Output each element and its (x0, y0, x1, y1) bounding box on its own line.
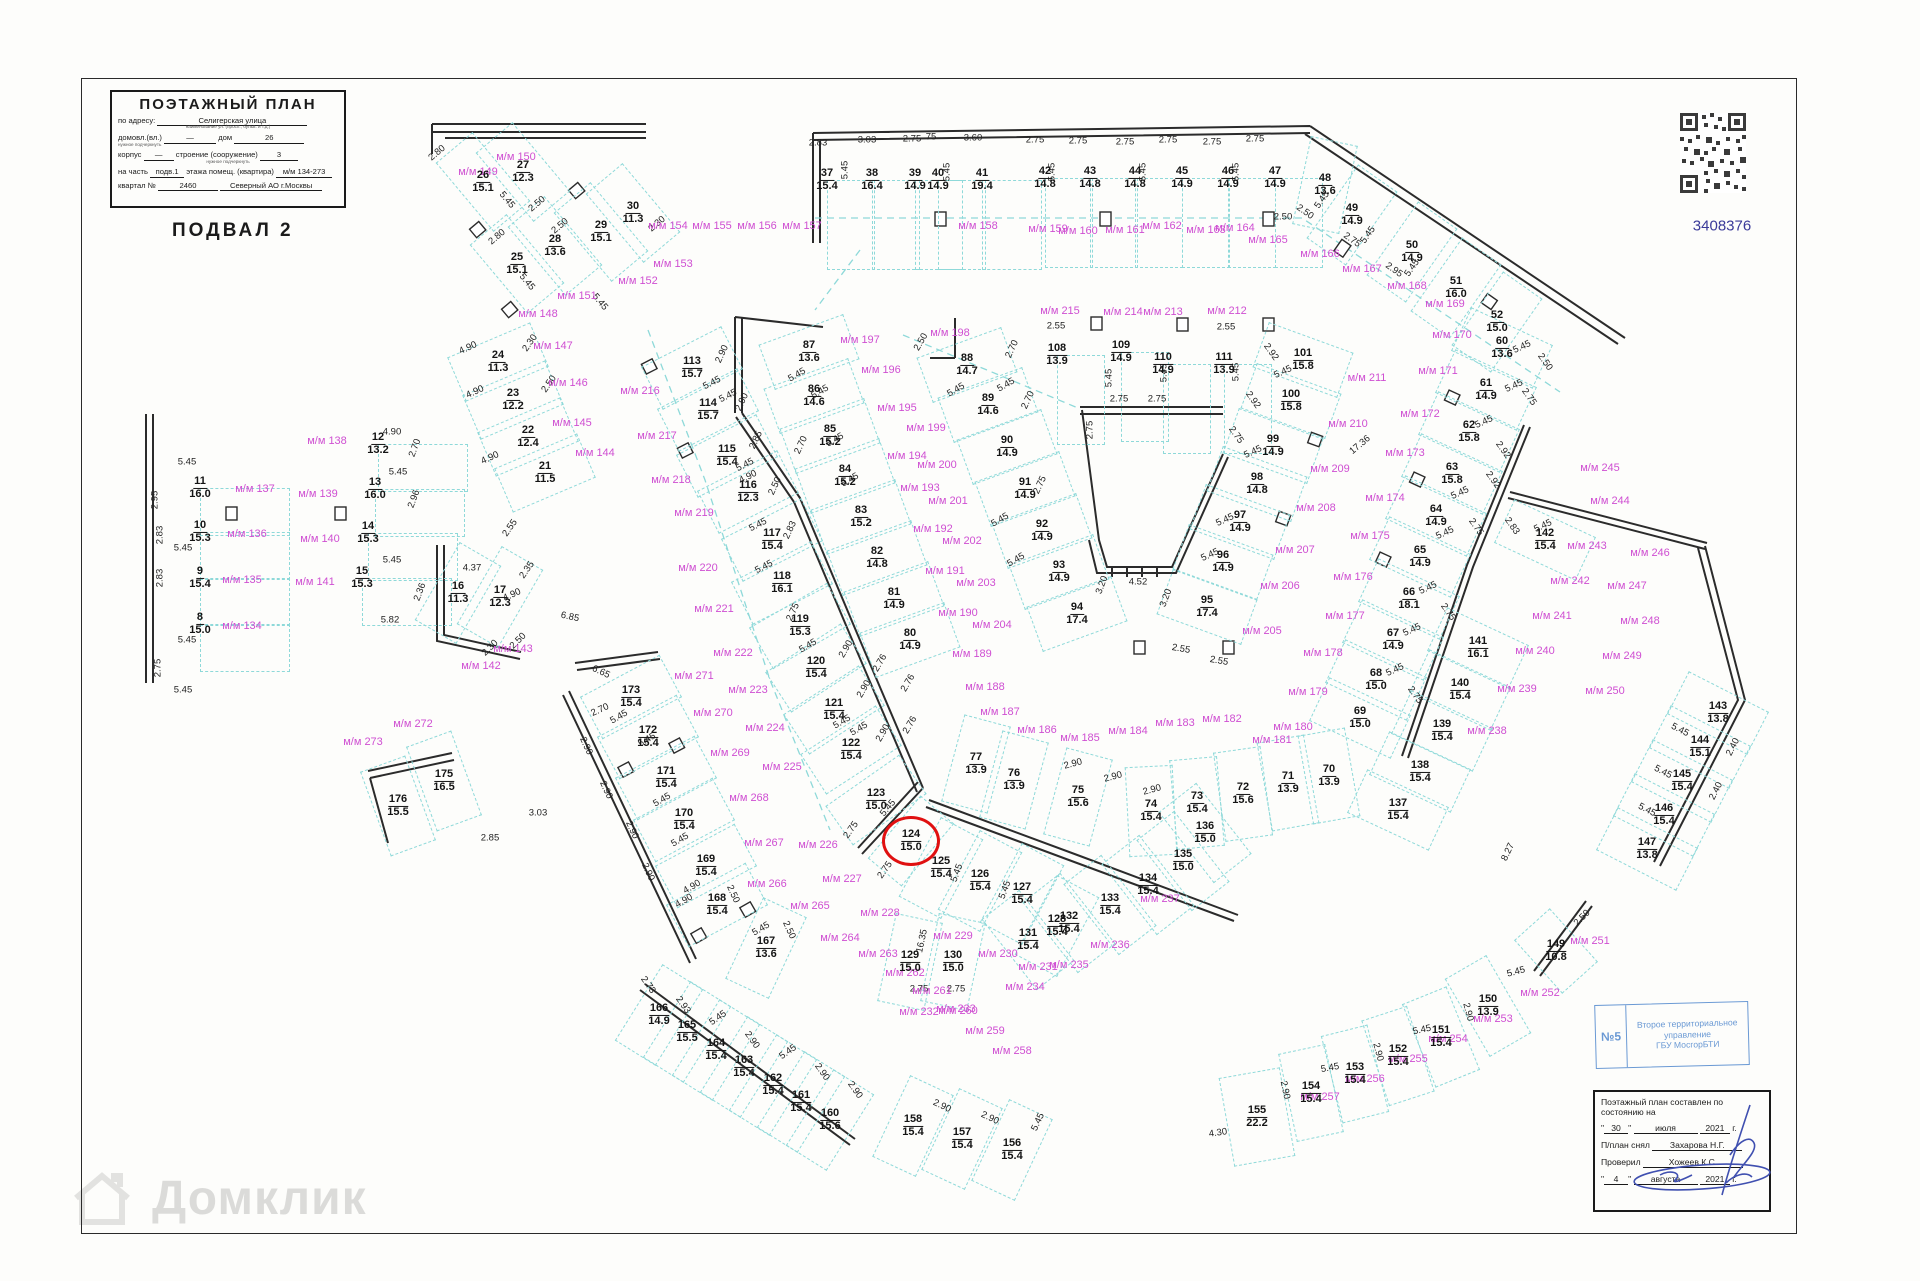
parking-space-label: 7013.9 (1318, 764, 1339, 788)
dimension-label: 2.75 (1148, 394, 1167, 405)
parking-space-id-label: м/м 222 (713, 647, 753, 659)
parking-space-label: 1015.3 (189, 520, 210, 544)
parking-space-label: 4014.9 (927, 168, 948, 192)
parking-space-label: 2312.2 (502, 388, 523, 412)
parking-space-label: 1213.2 (367, 432, 388, 456)
parking-space-id-label: м/м 217 (637, 430, 677, 442)
qr-number: 3408376 (1693, 218, 1751, 235)
parking-space-id-label: м/м 192 (913, 523, 953, 535)
dimension-label: 5.45 (178, 635, 197, 646)
parking-space-label: 4813.6 (1314, 173, 1335, 197)
parking-space-id-label: м/м 204 (972, 619, 1012, 631)
parking-space-id-label: м/м 269 (710, 747, 750, 759)
parking-space-id-label: м/м 172 (1400, 408, 1440, 420)
parking-space-label: 3715.4 (816, 168, 837, 192)
parking-space-label: 9914.9 (1262, 434, 1283, 458)
parking-space-id-label: м/м 266 (747, 878, 787, 890)
parking-space-id-label: м/м 187 (980, 706, 1020, 718)
parking-space-label: 11612.3 (737, 480, 758, 504)
parking-space-label: 6618.1 (1398, 587, 1419, 611)
parking-space-id-label: м/м 148 (518, 308, 558, 320)
watermark: Домклик (70, 1168, 367, 1228)
dimension-label: 2.75 (153, 659, 164, 678)
parking-space-label: 1415.3 (357, 521, 378, 545)
parking-space-label: 12715.4 (1011, 882, 1032, 906)
parking-space-label: 12115.4 (823, 698, 844, 722)
parking-space-id-label: м/м 176 (1333, 571, 1373, 583)
parking-space-label: 7315.4 (1186, 791, 1207, 815)
parking-space-label: 9214.9 (1031, 519, 1052, 543)
parking-space-label: 13815.4 (1409, 760, 1430, 784)
parking-space-id-label: м/м 236 (1090, 939, 1130, 951)
parking-space-label: 8214.8 (866, 546, 887, 570)
parking-space-id-label: м/м 173 (1385, 447, 1425, 459)
parking-space-label: 2411.3 (488, 350, 509, 374)
parking-space-id-label: м/м 216 (620, 385, 660, 397)
parking-space-label: 16015.6 (819, 1108, 840, 1132)
qr-code (1680, 113, 1746, 193)
dimension-label: 2.75 (1069, 136, 1088, 147)
parking-space-label: 16815.4 (706, 893, 727, 917)
parking-space-id-label: м/м 185 (1060, 732, 1100, 744)
parking-space-id-label: м/м 168 (1387, 280, 1427, 292)
parking-space-id-label: м/м 215 (1040, 305, 1080, 317)
parking-space-id-label: м/м 272 (393, 718, 433, 730)
parking-space-label: 8114.9 (883, 587, 904, 611)
parking-space-id-label: м/м 250 (1585, 685, 1625, 697)
parking-space-label: 10813.9 (1046, 343, 1067, 367)
quarter-number: 2460 (158, 181, 218, 191)
parking-space-label: 11515.4 (716, 444, 737, 468)
parking-space-label: 2712.3 (512, 160, 533, 184)
parking-space-id-label: м/м 245 (1580, 462, 1620, 474)
parking-space-label: 12515.4 (930, 856, 951, 880)
parking-space-id-label: м/м 219 (674, 507, 714, 519)
parking-space-id-label: м/м 273 (343, 736, 383, 748)
parking-space-label: 2813.6 (544, 234, 565, 258)
dimension-label: 2.85 (481, 833, 500, 844)
parking-space-id-label: м/м 263 (858, 948, 898, 960)
dimension-label: 5.45 (389, 467, 408, 478)
parking-space-label: 7415.4 (1140, 799, 1161, 823)
parking-space-label: 8614.6 (803, 384, 824, 408)
parking-space-id-label: м/м 142 (461, 660, 501, 672)
parking-space-id-label: м/м 182 (1202, 713, 1242, 725)
parking-space-id-label: м/м 201 (928, 495, 968, 507)
parking-space-label: 10914.9 (1110, 340, 1131, 364)
building-number: 3 (260, 150, 298, 160)
parking-space-id-label: м/м 270 (693, 707, 733, 719)
parking-space-id-label: м/м 264 (820, 932, 860, 944)
parking-space-id-label: м/м 203 (956, 577, 996, 589)
parking-space-label: 5014.9 (1401, 240, 1422, 264)
parking-space-id-label: м/м 259 (965, 1025, 1005, 1037)
parking-space-label: 8914.6 (977, 393, 998, 417)
parking-space-label: 8814.7 (956, 353, 977, 377)
parking-space-label: 7613.9 (1003, 768, 1024, 792)
parking-space-label: 14313.8 (1707, 701, 1728, 725)
parking-space-id-label: м/м 243 (1567, 540, 1607, 552)
parking-space-id-label: м/м 162 (1142, 220, 1182, 232)
parking-space-id-label: м/м 157 (782, 220, 822, 232)
parking-space-label: 15415.4 (1300, 1081, 1321, 1105)
parking-space-id-label: м/м 164 (1215, 222, 1255, 234)
parking-space-label: 17015.4 (673, 808, 694, 832)
parking-space-id-label: м/м 212 (1207, 305, 1247, 317)
dimension-label: 2.95 (150, 491, 161, 510)
parking-space-id-label: м/м 136 (227, 528, 267, 540)
parking-space-label: 15115.4 (1430, 1025, 1451, 1049)
dimension-label: 75 (926, 132, 937, 143)
parking-space-label: 16515.5 (676, 1020, 697, 1044)
parking-space-id-label: м/м 268 (729, 792, 769, 804)
parking-space-label: 8014.9 (899, 628, 920, 652)
parking-space-id-label: м/м 214 (1103, 306, 1143, 318)
parking-space-label: 15815.4 (902, 1114, 923, 1138)
basement-label: ПОДВАЛ 2 (172, 220, 294, 242)
parking-space-id-label: м/м 179 (1288, 686, 1328, 698)
parking-space-label: 17215.4 (637, 725, 658, 749)
parking-space-label: 2212.4 (517, 425, 538, 449)
parking-space-id-label: м/м 141 (295, 576, 335, 588)
parking-space-id-label: м/м 246 (1630, 547, 1670, 559)
dimension-label: 2.75 (1085, 421, 1096, 440)
parking-space-id-label: м/м 200 (917, 459, 957, 471)
highlighted-space-ring (882, 816, 940, 866)
dimension-label: 2.75 (1159, 135, 1178, 146)
parking-space-id-label: м/м 158 (958, 220, 998, 232)
parking-space-id-label: м/м 156 (737, 220, 777, 232)
dimension-label: 5.45 (840, 161, 851, 180)
parking-space-label: 2915.1 (590, 220, 611, 244)
dimension-label: 2.55 (1217, 322, 1236, 333)
dimension-label: 2.83 (155, 569, 166, 588)
parking-space-label: 12615.4 (969, 869, 990, 893)
stamp-text: Второе территориальноеуправлениеГБУ Мосг… (1626, 1002, 1749, 1067)
parking-space-id-label: м/м 208 (1296, 502, 1336, 514)
parking-space-label: 12015.4 (805, 656, 826, 680)
title-block-heading: ПОЭТАЖНЫЙ ПЛАН (118, 96, 338, 113)
parking-space-id-label: м/м 181 (1252, 734, 1292, 746)
parking-space-label: 11415.7 (697, 398, 718, 422)
parking-space-label: 4414.8 (1124, 166, 1145, 190)
parking-space-id-label: м/м 249 (1602, 650, 1642, 662)
parking-space-label: 7713.9 (965, 752, 986, 776)
parking-space-label: 17315.4 (620, 685, 641, 709)
parking-space-id-label: м/м 261 (912, 985, 952, 997)
parking-space-id-label: м/м 197 (840, 334, 880, 346)
parking-space-label: 6915.0 (1349, 706, 1370, 730)
parking-space-label: 14116.1 (1467, 636, 1488, 660)
parking-space-id-label: м/м 206 (1260, 580, 1300, 592)
parking-space-label: 9814.8 (1246, 472, 1267, 496)
parking-space-label: 16915.4 (695, 854, 716, 878)
parking-space-label: 3816.4 (861, 168, 882, 192)
parking-space-id-label: м/м 235 (1049, 959, 1089, 971)
parking-space-label: 11014.9 (1152, 352, 1173, 376)
parking-space-label: 15522.2 (1246, 1105, 1267, 1129)
parking-space-id-label: м/м 227 (822, 873, 862, 885)
parking-space-label: 5215.0 (1486, 310, 1507, 334)
parking-space-label: 4214.8 (1034, 166, 1055, 190)
parking-space-id-label: м/м 189 (952, 648, 992, 660)
dimension-label: 5.45 (174, 543, 193, 554)
parking-space-id-label: м/м 151 (557, 290, 597, 302)
parking-space-label: 1316.0 (364, 477, 385, 501)
parking-space-label: 8415.2 (834, 464, 855, 488)
parking-space-id-label: м/м 195 (877, 402, 917, 414)
parking-space-id-label: м/м 147 (533, 340, 573, 352)
parking-space-id-label: м/м 265 (790, 900, 830, 912)
parking-space-label: 7515.6 (1067, 785, 1088, 809)
dimension-label: 2.75 (1246, 134, 1265, 145)
parking-space-label: 15013.9 (1477, 994, 1498, 1018)
parking-space-id-label: м/м 155 (692, 220, 732, 232)
quarter-row: квартал № 2460 Северный АО г.Москвы (118, 181, 338, 191)
parking-space-label: 11715.4 (761, 528, 782, 552)
parking-space-id-label: м/м 152 (618, 275, 658, 287)
parking-space-label: 14615.4 (1653, 803, 1674, 827)
parking-space-label: 815.0 (189, 612, 210, 636)
parking-space-label: 8713.6 (798, 340, 819, 364)
parking-space-label: 17615.5 (387, 794, 408, 818)
parking-space-label: 13315.4 (1099, 893, 1120, 917)
parking-space-id-label: м/м 198 (930, 327, 970, 339)
district-value: Северный АО г.Москвы (220, 181, 322, 191)
parking-space-id-label: м/м 134 (222, 620, 262, 632)
parking-space-label: 9517.4 (1196, 595, 1217, 619)
parking-space-id-label: м/м 207 (1275, 544, 1315, 556)
parking-space-id-label: м/м 167 (1342, 263, 1382, 275)
parking-space-label: 6315.8 (1441, 462, 1462, 486)
parking-space-label: 9314.9 (1048, 560, 1069, 584)
parking-space-label: 1515.3 (351, 566, 372, 590)
parking-space-label: 9014.9 (996, 435, 1017, 459)
scanned-floor-plan-sheet: ПОЭТАЖНЫЙ ПЛАН по адресу: Селигерская ул… (0, 0, 1920, 1281)
parking-space-label: 11816.1 (771, 571, 792, 595)
parking-space-id-label: м/м 171 (1418, 365, 1458, 377)
parking-space-id-label: м/м 137 (235, 483, 275, 495)
dimension-label: 5.45 (1104, 369, 1115, 388)
parking-space-id-label: м/м 224 (745, 722, 785, 734)
dimension-label: 5.45 (178, 457, 197, 468)
parking-space-label: 6114.9 (1475, 378, 1496, 402)
dimension-label: 3.03 (858, 135, 877, 146)
parking-space-label: 12315.0 (865, 788, 886, 812)
parking-space-label: 6514.9 (1409, 545, 1430, 569)
parking-space-id-label: м/м 202 (942, 535, 982, 547)
parking-space-label: 13015.0 (942, 950, 963, 974)
parking-space-label: 10115.8 (1292, 348, 1313, 372)
dimension-label: 3.60 (964, 133, 983, 144)
parking-space-label: 14713.8 (1636, 837, 1657, 861)
parking-space-label: 17115.4 (655, 766, 676, 790)
dimension-label: 4.52 (1129, 577, 1148, 588)
parking-space-label: 15315.4 (1344, 1062, 1365, 1086)
parking-space-label: 15215.4 (1387, 1044, 1408, 1068)
space-range: м/м 134-273 (276, 167, 332, 177)
dimension-label: 2.75 (903, 134, 922, 145)
parking-space-id-label: м/м 252 (1520, 987, 1560, 999)
dimension-label: 5.45 (383, 555, 402, 566)
parking-space-label: 14415.1 (1689, 735, 1710, 759)
parking-space-id-label: м/м 153 (653, 258, 693, 270)
parking-stall (827, 180, 875, 270)
parking-space-id-label: м/м 248 (1620, 615, 1660, 627)
parking-space-label: 1611.3 (448, 581, 469, 605)
parking-space-label: 13915.4 (1431, 719, 1452, 743)
stamp-number: №5 (1595, 1005, 1628, 1068)
dimension-label: 5.45 (174, 685, 193, 696)
parking-space-id-label: м/м 154 (648, 220, 688, 232)
watermark-text: Домклик (152, 1171, 367, 1226)
parking-space-id-label: м/м 160 (1058, 225, 1098, 237)
parking-space-id-label: м/м 183 (1155, 717, 1195, 729)
parking-space-label: 13615.0 (1194, 821, 1215, 845)
parking-space-label: 2515.1 (506, 252, 527, 276)
parking-space-label: 6714.9 (1382, 628, 1403, 652)
parking-space-label: 4914.9 (1341, 203, 1362, 227)
parking-space-label: 15615.4 (1001, 1138, 1022, 1162)
parking-space-id-label: м/м 191 (925, 565, 965, 577)
parking-space-id-label: м/м 174 (1365, 492, 1405, 504)
parking-space-id-label: м/м 211 (1348, 372, 1387, 384)
parking-space-label: 3914.9 (904, 168, 925, 192)
parking-space-id-label: м/м 188 (965, 681, 1005, 693)
parking-space-id-label: м/м 220 (678, 562, 718, 574)
title-block: ПОЭТАЖНЫЙ ПЛАН по адресу: Селигерская ул… (110, 90, 346, 208)
parking-space-label: 1116.0 (189, 476, 210, 500)
parking-space-id-label: м/м 199 (906, 422, 946, 434)
parking-space-id-label: м/м 146 (548, 377, 588, 389)
parking-space-label: 7113.9 (1277, 771, 1298, 795)
parking-space-label: 14015.4 (1449, 678, 1470, 702)
parking-space-label: 7215.6 (1232, 782, 1253, 806)
parking-space-label: 9614.9 (1212, 550, 1233, 574)
parking-space-id-label: м/м 186 (1017, 724, 1057, 736)
day-value: 30 (1604, 1123, 1628, 1134)
parking-space-label: 6414.9 (1425, 504, 1446, 528)
parking-space-id-label: м/м 190 (938, 607, 978, 619)
day2-value: 4 (1604, 1174, 1628, 1185)
parking-space-id-label: м/м 225 (762, 761, 802, 773)
parking-space-label: 11315.7 (681, 356, 702, 380)
parking-space-id-label: м/м 271 (674, 670, 714, 682)
house-number: 26 (234, 133, 304, 143)
parking-space-label: 13415.4 (1137, 873, 1158, 897)
dimension-label: 2.55 (1047, 321, 1066, 332)
parking-space-label: 11113.9 (1213, 352, 1234, 376)
parking-space-id-label: м/м 139 (298, 488, 338, 500)
parking-space-id-label: м/м 144 (575, 447, 615, 459)
parking-stall (872, 180, 920, 270)
parking-space-id-label: м/м 251 (1570, 935, 1610, 947)
parking-space-id-label: м/м 218 (651, 474, 691, 486)
parking-space-label: 1712.3 (489, 585, 510, 609)
parking-space-label: 14515.4 (1671, 769, 1692, 793)
dimension-label: 4.37 (463, 563, 482, 574)
parking-space-id-label: м/м 232 (899, 1006, 939, 1018)
parking-stall (1163, 364, 1211, 454)
parking-space-label: 13115.4 (1017, 928, 1038, 952)
dimension-label: 2.75 (1026, 135, 1045, 146)
dimension-label: 5.82 (381, 615, 400, 626)
parking-space-label: 9114.9 (1014, 477, 1035, 501)
parking-space-id-label: м/м 226 (798, 839, 838, 851)
parking-space-label: 6815.0 (1365, 668, 1386, 692)
parking-space-label: 10015.8 (1280, 389, 1301, 413)
signature-scribble (1630, 1095, 1790, 1215)
bti-stamp: №5 Второе территориальноеуправлениеГБУ М… (1594, 1001, 1750, 1069)
parking-space-label: 5116.0 (1445, 276, 1466, 300)
parking-space-id-label: м/м 240 (1515, 645, 1555, 657)
parking-space-label: 4514.9 (1171, 166, 1192, 190)
parking-stall (1090, 178, 1138, 268)
parking-space-id-label: м/м 223 (728, 684, 768, 696)
dimension-label: 2.50 (1274, 212, 1293, 223)
parking-space-id-label: м/м 178 (1303, 647, 1343, 659)
parking-space-id-label: м/м 230 (978, 948, 1018, 960)
parking-space-label: 16315.4 (733, 1055, 754, 1079)
parking-space-id-label: м/м 241 (1532, 610, 1572, 622)
dimension-label: 2.75 (1203, 137, 1222, 148)
parking-space-label: 4614.9 (1217, 166, 1238, 190)
parking-space-id-label: м/м 170 (1432, 329, 1472, 341)
parking-space-label: 12915.0 (899, 950, 920, 974)
parking-space-label: 8515.2 (819, 424, 840, 448)
parking-space-label: 12215.4 (840, 738, 861, 762)
parking-space-id-label: м/м 239 (1497, 683, 1537, 695)
parking-space-label: 3011.3 (623, 201, 644, 225)
dimension-label: 2.83 (155, 526, 166, 545)
parking-space-id-label: м/м 221 (694, 603, 734, 615)
parking-space-label: 16115.4 (790, 1090, 811, 1114)
parking-space-id-label: м/м 161 (1105, 224, 1145, 236)
dimension-label: 3.03 (529, 808, 548, 819)
parking-space-label: 2615.1 (472, 170, 493, 194)
parking-space-label: 13715.4 (1387, 798, 1408, 822)
parking-space-id-label: м/м 210 (1328, 418, 1368, 430)
parking-space-id-label: м/м 238 (1467, 725, 1507, 737)
parking-space-label: 2111.5 (535, 461, 556, 485)
parking-space-label: 4119.4 (971, 168, 992, 192)
parking-space-id-label: м/м 209 (1310, 463, 1350, 475)
parking-space-id-label: м/м 205 (1242, 625, 1282, 637)
parking-space-id-label: м/м 242 (1550, 575, 1590, 587)
parking-space-label: 13215.4 (1058, 911, 1079, 935)
parking-space-id-label: м/м 138 (307, 435, 347, 447)
parking-space-id-label: м/м 229 (933, 930, 973, 942)
parking-space-id-label: м/м 184 (1108, 725, 1148, 737)
parking-space-id-label: м/м 258 (992, 1045, 1032, 1057)
parking-space-id-label: м/м 177 (1325, 610, 1365, 622)
dimension-label: 2.83 (809, 138, 828, 149)
parking-space-id-label: м/м 193 (900, 482, 940, 494)
parking-space-label: 8315.2 (850, 505, 871, 529)
parking-space-label: 16215.4 (762, 1073, 783, 1097)
parking-space-id-label: м/м 165 (1248, 234, 1288, 246)
parking-space-id-label: м/м 213 (1143, 306, 1183, 318)
parking-space-label: 16614.9 (648, 1003, 669, 1027)
parking-space-id-label: м/м 180 (1273, 721, 1313, 733)
dimension-label: 2.75 (1116, 137, 1135, 148)
parking-space-id-label: м/м 196 (861, 364, 901, 376)
parking-space-id-label: м/м 135 (222, 574, 262, 586)
parking-space-label: 14910.8 (1545, 939, 1566, 963)
parking-space-id-label: м/м 145 (552, 417, 592, 429)
parking-space-label: 4714.9 (1264, 166, 1285, 190)
parking-space-label: 4314.8 (1079, 166, 1100, 190)
